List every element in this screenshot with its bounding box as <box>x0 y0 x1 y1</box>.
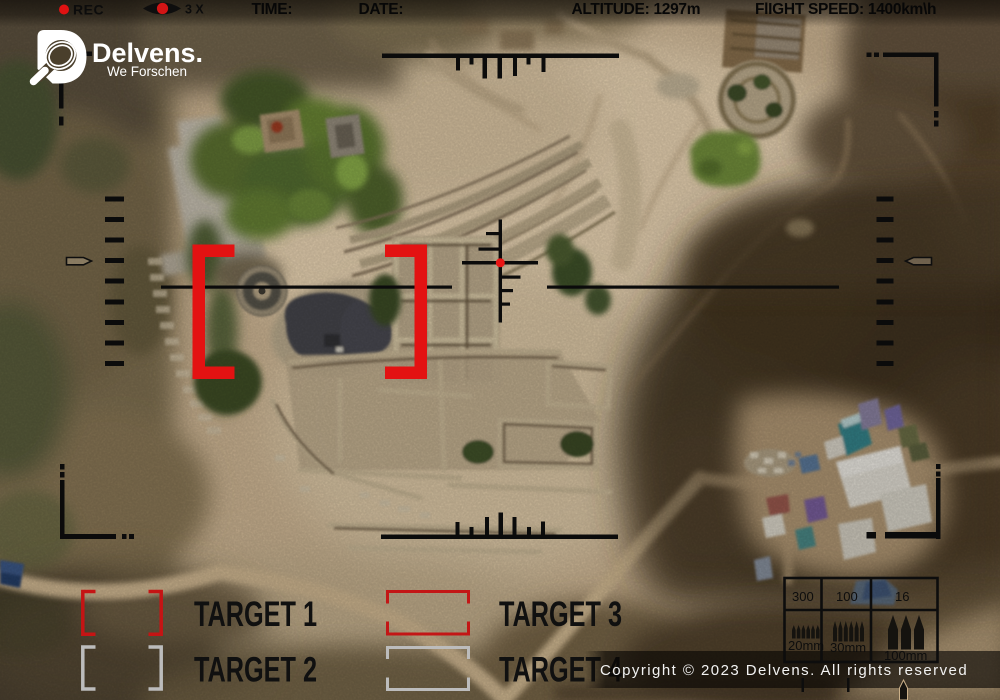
svg-text:TARGET 3: TARGET 3 <box>499 595 622 634</box>
svg-text:ALTITUDE: 1297m: ALTITUDE: 1297m <box>572 1 701 18</box>
svg-text:30mm: 30mm <box>830 640 866 655</box>
svg-text:100mm: 100mm <box>884 648 927 663</box>
svg-text:100: 100 <box>836 589 858 604</box>
svg-text:TIME:: TIME: <box>252 1 293 18</box>
svg-text:20mm: 20mm <box>788 638 824 653</box>
svg-text:TARGET 1: TARGET 1 <box>194 595 317 634</box>
svg-text:3 X: 3 X <box>185 3 204 17</box>
svg-text:Copyright © 2023 Delvens. All: Copyright © 2023 Delvens. All rights res… <box>600 662 968 679</box>
svg-text:We Forschen: We Forschen <box>107 64 187 79</box>
svg-text:300: 300 <box>792 589 814 604</box>
svg-text:16: 16 <box>895 589 909 604</box>
svg-text:TARGET 2: TARGET 2 <box>194 651 317 690</box>
svg-text:DATE:: DATE: <box>359 1 404 18</box>
svg-text:FlIGHT SPEED: 1400km\h: FlIGHT SPEED: 1400km\h <box>755 1 936 18</box>
svg-text:REC: REC <box>73 2 104 18</box>
